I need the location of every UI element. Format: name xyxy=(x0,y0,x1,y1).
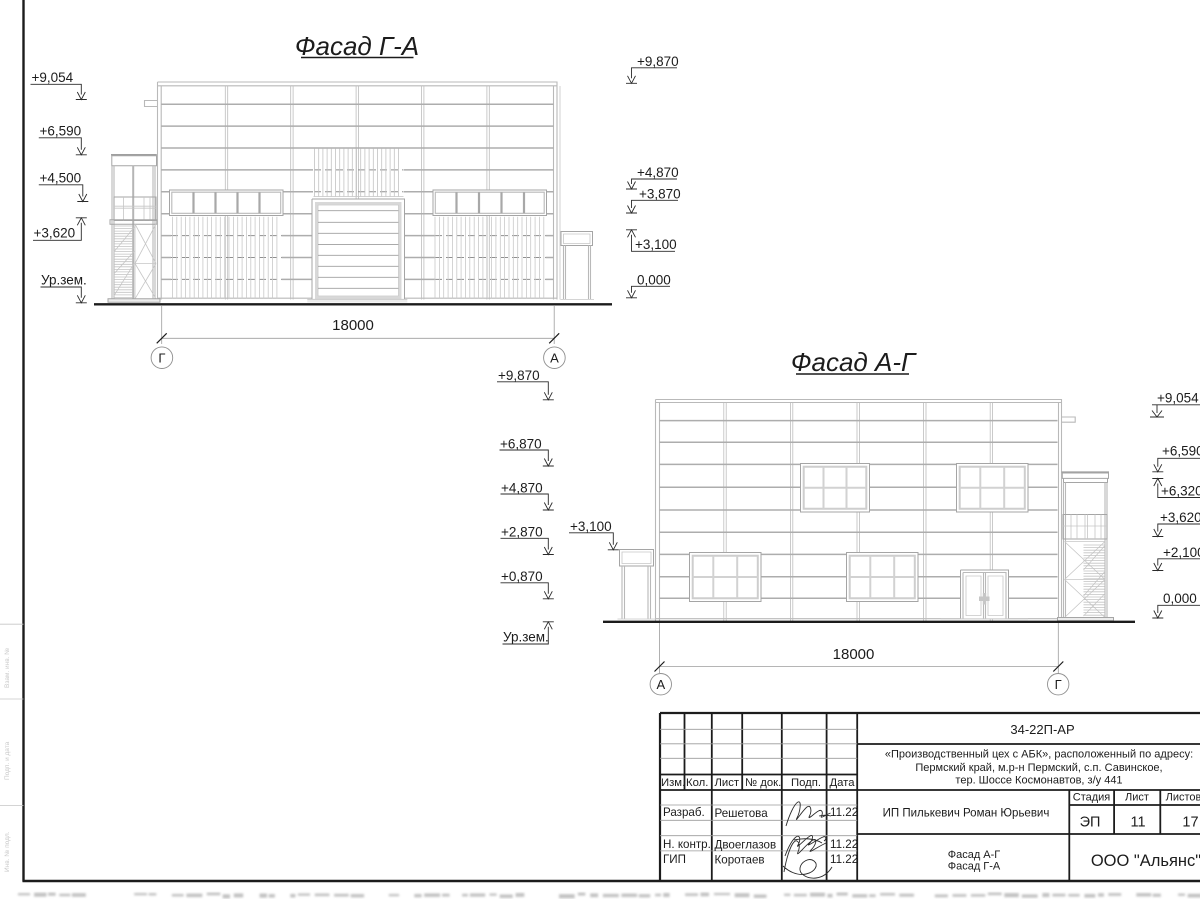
svg-text:+3,870: +3,870 xyxy=(639,187,681,202)
svg-text:Двоеглазов: Двоеглазов xyxy=(715,839,777,852)
svg-text:+2,100: +2,100 xyxy=(1163,545,1200,560)
svg-text:А: А xyxy=(656,677,665,692)
svg-text:+9,054: +9,054 xyxy=(32,70,74,85)
svg-text:Изм.: Изм. xyxy=(661,777,685,789)
svg-text:Инв. № подл.: Инв. № подл. xyxy=(4,831,11,872)
svg-text:+4,870: +4,870 xyxy=(501,481,543,496)
svg-text:+6,590: +6,590 xyxy=(40,124,82,139)
svg-text:11.22: 11.22 xyxy=(830,853,858,866)
svg-text:ООО "Альянс": ООО "Альянс" xyxy=(1091,852,1200,870)
svg-text:Фасад Г-А: Фасад Г-А xyxy=(948,861,1001,873)
svg-text:Разраб.: Разраб. xyxy=(663,806,705,819)
svg-text:34-22П-АР: 34-22П-АР xyxy=(1010,722,1074,737)
svg-text:+0,870: +0,870 xyxy=(501,569,543,584)
svg-text:Фасад Г-А: Фасад Г-А xyxy=(295,31,419,61)
svg-text:Лист: Лист xyxy=(1125,792,1149,804)
svg-text:0,000: 0,000 xyxy=(637,273,671,288)
svg-text:+3,620: +3,620 xyxy=(1160,510,1200,525)
svg-text:+3,620: +3,620 xyxy=(34,226,76,241)
svg-text:тер. Шоссе Космонавтов, з/у 44: тер. Шоссе Космонавтов, з/у 441 xyxy=(955,775,1122,787)
svg-text:Фасад А-Г: Фасад А-Г xyxy=(791,347,917,377)
svg-text:18000: 18000 xyxy=(833,646,875,663)
svg-text:№ док.: № док. xyxy=(745,777,781,789)
svg-text:+6,590: +6,590 xyxy=(1162,444,1200,459)
svg-text:Н. контр.: Н. контр. xyxy=(663,838,711,851)
svg-text:Листов: Листов xyxy=(1166,792,1200,804)
svg-text:+6,320: +6,320 xyxy=(1161,484,1200,499)
svg-text:Ур.зем.: Ур.зем. xyxy=(503,630,549,645)
svg-text:Г: Г xyxy=(1055,677,1062,692)
svg-text:«Производственный цех с АБК»,: «Производственный цех с АБК», расположен… xyxy=(885,749,1193,761)
svg-text:+9,870: +9,870 xyxy=(637,54,679,69)
svg-text:ИП Пилькевич Роман Юрьевич: ИП Пилькевич Роман Юрьевич xyxy=(883,808,1050,820)
svg-text:+4,500: +4,500 xyxy=(40,171,82,186)
svg-text:Лист: Лист xyxy=(715,777,740,789)
svg-text:Г: Г xyxy=(158,351,165,366)
svg-text:+3,100: +3,100 xyxy=(570,519,612,534)
svg-text:Кол.: Кол. xyxy=(686,777,708,789)
svg-text:ЭП: ЭП xyxy=(1080,815,1101,831)
svg-text:А: А xyxy=(550,351,559,366)
svg-text:+3,100: +3,100 xyxy=(635,237,677,252)
svg-text:11: 11 xyxy=(1130,815,1145,831)
svg-text:11.22: 11.22 xyxy=(830,838,858,851)
svg-text:Пермский край, м.р-н Пермский,: Пермский край, м.р-н Пермский, с.п. Сави… xyxy=(915,762,1162,774)
svg-text:Подп. и дата: Подп. и дата xyxy=(4,741,11,780)
svg-text:+9,054: +9,054 xyxy=(1157,391,1199,406)
svg-text:Дата: Дата xyxy=(830,777,856,789)
svg-text:Решетова: Решетова xyxy=(715,807,769,820)
svg-text:17: 17 xyxy=(1182,815,1198,831)
svg-text:+4,870: +4,870 xyxy=(637,165,679,180)
svg-text:Подп.: Подп. xyxy=(791,777,821,789)
svg-text:+6,870: +6,870 xyxy=(500,437,542,452)
svg-text:0,000: 0,000 xyxy=(1163,591,1197,606)
svg-text:Коротаев: Коротаев xyxy=(715,854,765,867)
svg-text:+2,870: +2,870 xyxy=(501,525,543,540)
svg-text:Стадия: Стадия xyxy=(1073,792,1111,804)
svg-text:Взам. инв. №: Взам. инв. № xyxy=(4,648,11,688)
svg-text:+9,870: +9,870 xyxy=(498,368,540,383)
svg-text:Ур.зем.: Ур.зем. xyxy=(41,273,87,288)
svg-text:18000: 18000 xyxy=(332,317,374,334)
svg-text:ГИП: ГИП xyxy=(663,853,686,866)
svg-text:Фасад А-Г: Фасад А-Г xyxy=(948,849,1001,861)
svg-text:11.22: 11.22 xyxy=(830,806,858,819)
